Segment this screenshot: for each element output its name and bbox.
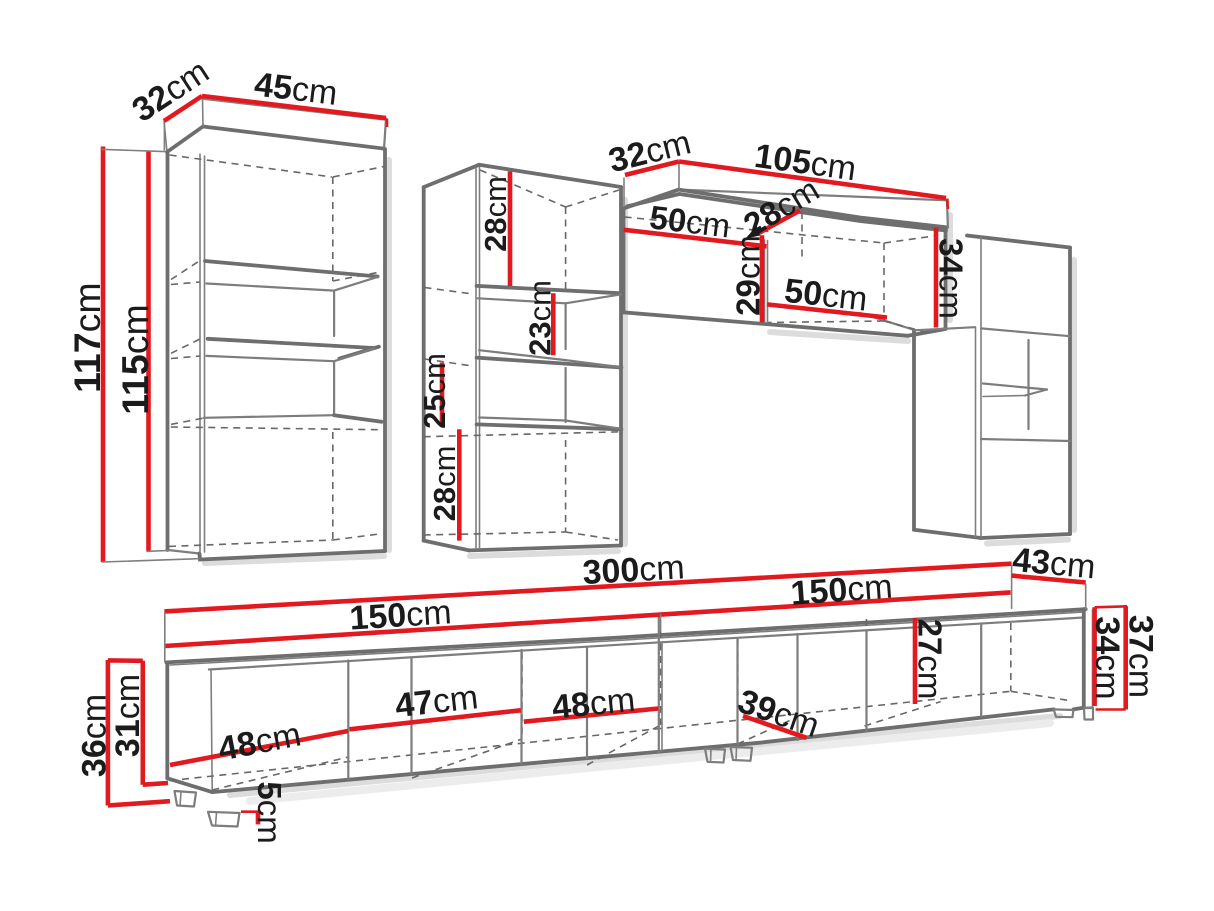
svg-text:117cm: 117cm (66, 282, 108, 393)
svg-text:25cm: 25cm (417, 353, 452, 429)
svg-text:48cm: 48cm (550, 681, 636, 727)
svg-text:23cm: 23cm (523, 280, 558, 356)
svg-text:37cm: 37cm (1121, 615, 1159, 698)
svg-text:29cm: 29cm (729, 235, 766, 316)
svg-text:27cm: 27cm (912, 619, 949, 700)
svg-text:36cm: 36cm (76, 694, 114, 777)
svg-text:34cm: 34cm (1088, 616, 1126, 699)
svg-text:300cm: 300cm (582, 548, 686, 592)
svg-text:43cm: 43cm (1011, 541, 1097, 587)
svg-text:150cm: 150cm (789, 568, 894, 613)
svg-text:115cm: 115cm (114, 304, 156, 415)
svg-text:31cm: 31cm (109, 674, 147, 757)
svg-text:28cm: 28cm (478, 176, 513, 252)
svg-text:5cm: 5cm (251, 781, 288, 843)
svg-text:150cm: 150cm (348, 593, 452, 637)
svg-text:28cm: 28cm (427, 446, 462, 522)
svg-text:34cm: 34cm (933, 238, 970, 319)
